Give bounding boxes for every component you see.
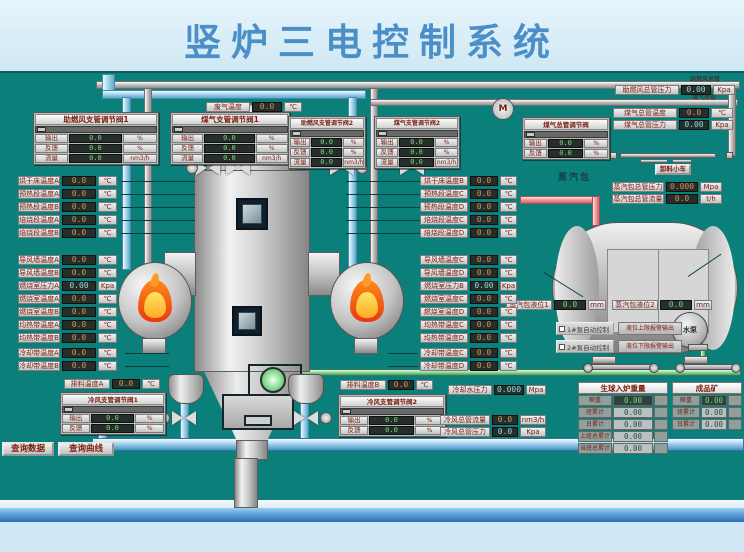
readout-row: 焙烧段温度A 0.0 ℃ — [18, 215, 117, 225]
panel-row: 流量 0.0 nm3/h — [290, 158, 364, 167]
air-main-press-row: 助燃风总管压力 0.00 Kpa — [615, 85, 735, 95]
slider-thumb[interactable] — [342, 409, 351, 414]
table-row: 班累计 0.00 t — [578, 407, 668, 418]
readout-label: 预热段温度B — [18, 202, 60, 212]
panel-row-label: 反馈 — [376, 148, 398, 157]
panel-rows: 输出 0.0 % 反馈 0.0 % 流量 0.0 nm3/h — [376, 138, 458, 167]
readout-label: 冷却带温度C — [420, 348, 468, 358]
panel-row-label: 输出 — [376, 138, 398, 147]
readout-row: 焙烧段温度C 0.0 ℃ — [420, 215, 517, 225]
readout-value: 0.0 — [470, 176, 498, 186]
table-row-value: 0.00 — [613, 443, 653, 454]
readout-label: 烘干床温度B — [420, 176, 468, 186]
table-row: 当班总累计 0.00 t — [578, 443, 668, 454]
cart-button[interactable]: 卸料小车 — [655, 164, 691, 175]
readout-value: 0.0 — [62, 176, 96, 186]
water-pump-label: 水泵 — [683, 325, 697, 335]
leader-line — [346, 233, 420, 234]
panel-row-value: 0.0 — [548, 149, 584, 158]
panel-row-unit: nm3/h — [435, 158, 458, 167]
level-low-alarm-indicator: 液位下限报警输出 — [618, 340, 682, 353]
leader-line — [346, 181, 420, 182]
table-row: 瞬重 0.00 t/h — [672, 395, 742, 406]
readout-unit: ℃ — [98, 320, 117, 330]
panel-row: 反馈 0.0 % — [35, 144, 157, 153]
panel-row: 流量 0.0 nm3/h — [172, 154, 288, 163]
readout-value: 0.0 — [470, 268, 498, 278]
readout-unit: ℃ — [284, 102, 302, 112]
panel-row-value: 0.0 — [369, 426, 414, 435]
table-row: 班累计 0.00 t — [672, 407, 742, 418]
table-row-label: 当班总累计 — [578, 443, 612, 454]
conveyor-icon-1 — [586, 364, 656, 370]
left-readout-group-3: 冷却带温度A 0.0 ℃ 冷却带温度B 0.0 ℃ — [18, 348, 117, 374]
furnace-window-lower — [232, 306, 262, 336]
table-title: 生球入炉重量 — [578, 382, 668, 394]
valve-panel-air-branch-2: 助燃风支管调节阀2 输出 0.0 % 反馈 0.0 % 流量 0.0 nm3/h — [288, 116, 366, 169]
readout-value: 0.0 — [470, 333, 498, 343]
panel-row-unit: nm3/h — [343, 158, 364, 167]
query-data-button[interactable]: 查询数据 — [2, 442, 54, 456]
panel-row-label: 输出 — [524, 139, 547, 148]
valve-panel-gas-main: 煤气总管调节阀 输出 0.0 % 反馈 0.0 % — [522, 117, 610, 160]
panel-row-value: 0.0 — [399, 138, 434, 147]
readout-row: 导风墙温度C 0.0 ℃ — [420, 255, 517, 265]
readout-unit: Kpa — [520, 427, 546, 437]
panel-row-value: 0.0 — [311, 138, 342, 147]
readout-unit: ℃ — [98, 228, 117, 238]
valve-panel-gas-branch-2: 煤气支管调节阀2 输出 0.0 % 反馈 0.0 % 流量 0.0 nm3/h — [374, 116, 460, 169]
readout-label: 均热带温度D — [420, 333, 468, 343]
readout-row: 导风墙温度B 0.0 ℃ — [18, 268, 117, 278]
pump2-auto-label: 2#泵自动控制 — [567, 342, 609, 352]
table-row-label: 瞬重 — [672, 395, 700, 406]
panel-row-label: 反馈 — [172, 144, 203, 153]
pump1-auto-label: 1#泵自动控制 — [567, 324, 609, 334]
readout-unit: ℃ — [416, 380, 433, 390]
readout-value: 0.0 — [62, 361, 96, 371]
panel-row-value: 0.0 — [399, 148, 434, 157]
panel-row: 输出 0.0 % — [62, 414, 164, 423]
panel-row-unit: % — [256, 134, 288, 143]
readout-unit: ℃ — [500, 202, 517, 212]
page-title: 竖炉三电控制系统 — [0, 12, 744, 66]
table-title: 成品矿 — [672, 382, 742, 394]
panel-row: 输出 0.0 % — [524, 139, 608, 148]
panel-row-value: 0.0 — [369, 416, 414, 425]
readout-label: 焙烧段温度B — [18, 228, 60, 238]
leader-line — [346, 194, 420, 195]
panel-row-label: 输出 — [290, 138, 310, 147]
panel-row: 反馈 0.0 % — [62, 424, 164, 433]
readout-unit: ℃ — [98, 215, 117, 225]
slider-thumb[interactable] — [292, 131, 301, 136]
rail-end-block-right — [726, 152, 733, 159]
panel-row-value: 0.0 — [91, 414, 135, 423]
readout-row: 均热带温度C 0.0 ℃ — [420, 320, 517, 330]
panel-row: 反馈 0.0 % — [290, 148, 364, 157]
readout-value: 0.0 — [470, 228, 498, 238]
readout-value: 0.0 — [62, 320, 96, 330]
cold-wind-valve-icon-1[interactable] — [172, 410, 196, 426]
left-readout-group-2: 导风墙温度A 0.0 ℃ 导风墙温度B 0.0 ℃ 燃烧室压力A 0.00 Kp… — [18, 255, 117, 346]
slider-thumb[interactable] — [64, 407, 73, 412]
valve-panel-gas-branch-1: 煤气支管调节阀1 输出 0.0 % 反馈 0.0 % 流量 0.0 nm3/h — [170, 112, 290, 165]
panel-row-label: 反馈 — [524, 149, 547, 158]
table-row: 上班总累计 0.00 t — [578, 431, 668, 442]
readout-label: 燃烧室压力A — [18, 281, 60, 291]
panel-rows: 输出 0.0 % 反馈 0.0 % — [62, 414, 164, 433]
panel-row-unit: % — [435, 148, 458, 157]
table-row-value: 0.00 — [701, 419, 727, 430]
readout-value: 0.0 — [62, 333, 96, 343]
table-row-unit: t/h — [654, 395, 668, 406]
panel-row: 反馈 0.0 % — [376, 148, 458, 157]
readout-unit: ℃ — [500, 320, 517, 330]
panel-row-label: 流量 — [172, 154, 203, 163]
readout-label: 燃烧室温度D — [420, 307, 468, 317]
valve-panel-air-branch-1: 助燃风支管调节阀1 输出 0.0 % 反馈 0.0 % 流量 0.0 nm3/h — [33, 112, 159, 165]
panel-title: 煤气支管调节阀2 — [376, 118, 458, 129]
readout-row: 冷却带温度C 0.0 ℃ — [420, 348, 517, 358]
discharge-machine-box — [222, 394, 294, 430]
flame-icon-left — [138, 280, 172, 322]
readout-label: 冷却带温度B — [18, 361, 60, 371]
readout-value: 0.0 — [62, 215, 96, 225]
readout-unit: ℃ — [500, 255, 517, 265]
readout-value: 0.0 — [112, 379, 140, 389]
cold-wind-valve-icon-2[interactable] — [294, 410, 318, 426]
readout-row: 焙烧段温度B 0.0 ℃ — [18, 228, 117, 238]
valve-slider[interactable] — [524, 131, 608, 138]
readout-unit: ℃ — [500, 189, 517, 199]
panel-row-label: 反馈 — [35, 144, 68, 153]
bottom-pipe-band — [0, 508, 744, 522]
readout-row: 预热段温度C 0.0 ℃ — [420, 189, 517, 199]
readout-unit: Kpa — [711, 120, 733, 130]
leader-line — [121, 181, 195, 182]
readout-row: 烘干床温度B 0.0 ℃ — [420, 176, 517, 186]
table-row-unit: t — [654, 419, 668, 430]
readout-unit: ℃ — [500, 228, 517, 238]
panel-rows: 输出 0.0 % 反馈 0.0 % 流量 0.0 nm3/h — [172, 134, 288, 163]
readout-label: 蒸汽包液位2 — [612, 300, 658, 310]
readout-row: 焙烧段温度D 0.0 ℃ — [420, 228, 517, 238]
query-curve-button[interactable]: 查询曲线 — [58, 442, 114, 456]
panel-row-unit: % — [123, 134, 157, 143]
panel-rows: 输出 0.0 % 反馈 0.0 % — [524, 139, 608, 158]
burn-chamber-right-stand — [354, 338, 378, 354]
panel-row-value: 0.0 — [69, 154, 122, 163]
readout-row: 导风墙温度D 0.0 ℃ — [420, 268, 517, 278]
checkbox-icon — [559, 326, 565, 332]
readout-label: 导风墙温度C — [420, 255, 468, 265]
readout-unit: Kpa — [98, 281, 117, 291]
valve-slider[interactable] — [340, 408, 444, 415]
readout-value: 0.0 — [470, 348, 498, 358]
panel-rows: 输出 0.0 % 反馈 0.0 % 流量 0.0 nm3/h — [290, 138, 364, 167]
panel-title: 冷风支管调节阀1 — [62, 394, 164, 405]
right-readout-group-3: 冷却带温度C 0.0 ℃ 冷却带温度D 0.0 ℃ — [420, 348, 517, 374]
readout-value: 0.0 — [62, 307, 96, 317]
panel-row-unit: % — [584, 149, 608, 158]
steam-drum-label: 蒸汽包 — [558, 170, 591, 183]
readout-value: 0.0 — [470, 361, 498, 371]
readout-label: 焙烧段温度A — [18, 215, 60, 225]
readout-row: 燃烧室温度C 0.0 ℃ — [420, 294, 517, 304]
panel-row-label: 反馈 — [62, 424, 90, 433]
table-row: 日累计 0.00 t — [672, 419, 742, 430]
right-readout-group-2: 导风墙温度C 0.0 ℃ 导风墙温度D 0.0 ℃ 燃烧室压力B 0.00 Kp… — [420, 255, 517, 346]
readout-label: 燃烧室温度A — [18, 294, 60, 304]
readout-unit: ℃ — [98, 176, 117, 186]
valve-panel-cold-wind-2: 冷风支管调节阀2 输出 0.0 % 反馈 0.0 % — [338, 394, 446, 437]
table-row-unit: t — [728, 407, 742, 418]
table-row-unit: t/h — [728, 395, 742, 406]
drum-level2-row: 蒸汽包液位2 0.0 mm — [612, 300, 712, 310]
valve-actuator-icon-6 — [320, 412, 332, 424]
weight-table-product: 成品矿 瞬重 0.00 t/h 班累计 0.00 t 日累计 0.00 t — [672, 382, 742, 430]
table-row-unit: t — [654, 431, 668, 442]
panel-row-value: 0.0 — [311, 148, 342, 157]
readout-unit: ℃ — [500, 333, 517, 343]
discharge-temp-b-row: 排料温度B 0.0 ℃ — [340, 380, 433, 390]
panel-title: 助燃风支管调节阀1 — [35, 114, 157, 125]
readout-label: 预热段温度D — [420, 202, 468, 212]
panel-row: 输出 0.0 % — [172, 134, 288, 143]
readout-unit: Mpa — [700, 182, 722, 192]
readout-value: 0.0 — [470, 294, 498, 304]
readout-unit: Mpa — [526, 385, 546, 395]
right-readout-group-1: 烘干床温度B 0.0 ℃ 预热段温度C 0.0 ℃ 预热段温度D 0.0 ℃ 焙… — [420, 176, 517, 241]
leader-line — [125, 366, 169, 367]
readout-label: 均热带温度C — [420, 320, 468, 330]
leader-line — [121, 233, 195, 234]
leader-line — [346, 207, 420, 208]
pump1-auto-checkbox[interactable]: 1#泵自动控制 — [556, 322, 614, 335]
readout-row: 均热带温度A 0.0 ℃ — [18, 320, 117, 330]
valve-slider[interactable] — [62, 406, 164, 413]
readout-label: 冷风总管压力 — [440, 427, 490, 437]
cooling-water-press-row: 冷却水压力 0.000 Mpa — [448, 385, 546, 395]
readout-label: 均热带温度B — [18, 333, 60, 343]
slider-thumb[interactable] — [378, 131, 387, 136]
readout-value: 0.0 — [62, 268, 96, 278]
cold-wind-inlet-right — [288, 374, 324, 404]
panel-row: 流量 0.0 nm3/h — [376, 158, 458, 167]
readout-value: 0.00 — [681, 85, 711, 95]
panel-row-unit: % — [584, 139, 608, 148]
readout-value: 0.0 — [62, 348, 96, 358]
readout-unit: ℃ — [500, 294, 517, 304]
panel-row-unit: nm3/h — [256, 154, 288, 163]
panel-rows: 输出 0.0 % 反馈 0.0 % 流量 0.0 nm3/h — [35, 134, 157, 163]
readout-label: 导风墙温度B — [18, 268, 60, 278]
readout-unit: Kpa — [713, 85, 735, 95]
readout-value: 0.0 — [554, 300, 586, 310]
table-rows: 瞬重 0.00 t/h 班累计 0.00 t 日累计 0.00 t 上班总累计 … — [578, 395, 668, 454]
panel-row-unit: % — [256, 144, 288, 153]
steam-outlet-pipe-h — [520, 196, 600, 204]
table-row-unit: t — [728, 419, 742, 430]
table-row-label: 日累计 — [578, 419, 612, 430]
bottom-strip-white — [0, 500, 744, 508]
readout-row: 导风墙温度A 0.0 ℃ — [18, 255, 117, 265]
steam-press-row: 蒸汽包总管压力 0.000 Mpa — [612, 182, 722, 192]
gas-main-temp-row: 煤气总管温度 0.0 ℃ — [613, 108, 733, 118]
readout-unit: ℃ — [142, 379, 160, 389]
valve-slider[interactable] — [172, 126, 288, 133]
flame-icon-right — [350, 280, 384, 322]
furnace-window-upper — [236, 198, 268, 230]
readout-unit: ℃ — [98, 361, 117, 371]
readout-row: 预热段温度D 0.0 ℃ — [420, 202, 517, 212]
panel-row-value: 0.0 — [204, 144, 254, 153]
leader-line — [121, 220, 195, 221]
panel-row-unit: % — [135, 414, 164, 423]
checkbox-icon — [559, 344, 565, 350]
table-row: 日累计 0.00 t — [578, 419, 668, 430]
panel-row-value: 0.0 — [204, 154, 254, 163]
readout-value: 0.000 — [666, 182, 698, 192]
readout-unit: ℃ — [500, 215, 517, 225]
readout-row: 均热带温度D 0.0 ℃ — [420, 333, 517, 343]
panel-row-label: 输出 — [340, 416, 368, 425]
readout-value: 0.00 — [679, 120, 709, 130]
panel-row-label: 流量 — [35, 154, 68, 163]
discharge-temp-a-row: 排料温度A 0.0 ℃ — [64, 379, 160, 389]
table-row-label: 上班总累计 — [578, 431, 612, 442]
table-row-unit: t — [654, 407, 668, 418]
readout-unit: ℃ — [98, 189, 117, 199]
trolley-icon — [640, 159, 668, 163]
readout-unit: ℃ — [500, 307, 517, 317]
exhaust-temp-row: 废气温度 0.0 ℃ — [206, 102, 302, 112]
table-row-value: 0.00 — [701, 407, 727, 418]
cold-wind-inlet-left — [168, 374, 204, 404]
readout-label: 燃烧室温度B — [18, 307, 60, 317]
table-rows: 瞬重 0.00 t/h 班累计 0.00 t 日累计 0.00 t — [672, 395, 742, 430]
readout-row: 燃烧室温度D 0.0 ℃ — [420, 307, 517, 317]
panel-row-unit: % — [123, 144, 157, 153]
readout-row: 冷却带温度B 0.0 ℃ — [18, 361, 117, 371]
conveyor-icon-2 — [678, 364, 738, 370]
panel-row-unit: % — [343, 138, 364, 147]
slider-thumb[interactable] — [526, 132, 535, 137]
burn-chamber-left-stand — [142, 338, 166, 354]
slider-thumb[interactable] — [37, 127, 46, 132]
readout-label: 冷风总管流量 — [440, 415, 490, 425]
readout-label: 燃烧室压力B — [420, 281, 468, 291]
readout-row: 均热带温度B 0.0 ℃ — [18, 333, 117, 343]
readout-value: 0.00 — [470, 281, 498, 291]
panel-row-value: 0.0 — [548, 139, 584, 148]
weight-table-green-pellet: 生球入炉重量 瞬重 0.00 t/h 班累计 0.00 t 日累计 0.00 t… — [578, 382, 668, 454]
readout-unit: ℃ — [500, 268, 517, 278]
readout-label: 均热带温度A — [18, 320, 60, 330]
readout-value: 0.000 — [494, 385, 524, 395]
readout-value: 0.0 — [679, 108, 709, 118]
readout-row: 预热段温度A 0.0 ℃ — [18, 189, 117, 199]
drum-level1-row: 蒸汽包液位1 0.0 mm — [506, 300, 606, 310]
discharge-pipe — [234, 458, 258, 508]
readout-value: 0.0 — [62, 228, 96, 238]
readout-unit: ℃ — [98, 333, 117, 343]
panel-row-value: 0.0 — [311, 158, 342, 167]
readout-unit: ℃ — [500, 361, 517, 371]
panel-row-label: 流量 — [290, 158, 310, 167]
panel-row: 输出 0.0 % — [340, 416, 444, 425]
readout-unit: Kpa — [500, 281, 517, 291]
table-row-label: 班累计 — [578, 407, 612, 418]
blower-letter: M — [499, 104, 508, 114]
readout-unit: ℃ — [500, 348, 517, 358]
readout-value: 0.0 — [470, 255, 498, 265]
readout-unit: mm — [694, 300, 712, 310]
readout-value: 0.0 — [470, 307, 498, 317]
panel-row-value: 0.0 — [399, 158, 434, 167]
readout-value: 0.0 — [666, 194, 698, 204]
readout-label: 导风墙温度A — [18, 255, 60, 265]
readout-unit: ℃ — [98, 307, 117, 317]
readout-value: 0.0 — [62, 255, 96, 265]
readout-unit: ℃ — [98, 202, 117, 212]
trolley-icon-2 — [672, 159, 692, 163]
panel-row-unit: % — [343, 148, 364, 157]
level-high-alarm-indicator: 液位上限报警输出 — [618, 322, 682, 335]
readout-unit: nm3/h — [520, 415, 546, 425]
slider-thumb[interactable] — [174, 127, 183, 132]
panel-row-label: 输出 — [62, 414, 90, 423]
readout-value: 0.0 — [470, 215, 498, 225]
steam-flow-row: 蒸汽包总管流量 0.0 t/h — [612, 194, 722, 204]
readout-label: 预热段温度A — [18, 189, 60, 199]
panel-row-value: 0.0 — [91, 424, 135, 433]
readout-label: 冷却水压力 — [448, 385, 492, 395]
readout-value: 0.0 — [62, 294, 96, 304]
valve-slider[interactable] — [376, 130, 458, 137]
conveyor-feed-box-2 — [684, 356, 708, 364]
scada-screen: 竖炉三电控制系统 助燃风总管 煤气总管 — [0, 0, 744, 552]
pump2-auto-checkbox[interactable]: 2#泵自动控制 — [556, 340, 614, 353]
panel-row-label: 反馈 — [340, 426, 368, 435]
readout-row: 燃烧室压力A 0.00 Kpa — [18, 281, 117, 291]
readout-unit: t/h — [700, 194, 722, 204]
table-row-unit: t — [654, 443, 668, 454]
readout-value: 0.0 — [470, 202, 498, 212]
table-row-value: 0.00 — [701, 395, 727, 406]
readout-unit: ℃ — [500, 176, 517, 186]
panel-row-label: 流量 — [376, 158, 398, 167]
table-row-value: 0.00 — [613, 419, 653, 430]
panel-row-value: 0.0 — [69, 144, 122, 153]
panel-row-label: 输出 — [172, 134, 203, 143]
readout-value: 0.0 — [388, 380, 414, 390]
valve-slider[interactable] — [35, 126, 157, 133]
valve-slider[interactable] — [290, 130, 364, 137]
table-row: 瞬重 0.00 t/h — [578, 395, 668, 406]
cold-wind-flow-row: 冷风总管流量 0.0 nm3/h — [440, 415, 546, 425]
panel-row-unit: % — [435, 138, 458, 147]
bottom-strip-pale — [0, 522, 744, 552]
readout-row: 烘干床温度A 0.0 ℃ — [18, 176, 117, 186]
table-row-value: 0.00 — [613, 407, 653, 418]
panel-row-label: 反馈 — [290, 148, 310, 157]
panel-row: 反馈 0.0 % — [172, 144, 288, 153]
panel-row: 流量 0.0 nm3/h — [35, 154, 157, 163]
steam-outlet-pipe-v — [592, 196, 600, 226]
readout-value: 0.0 — [660, 300, 692, 310]
